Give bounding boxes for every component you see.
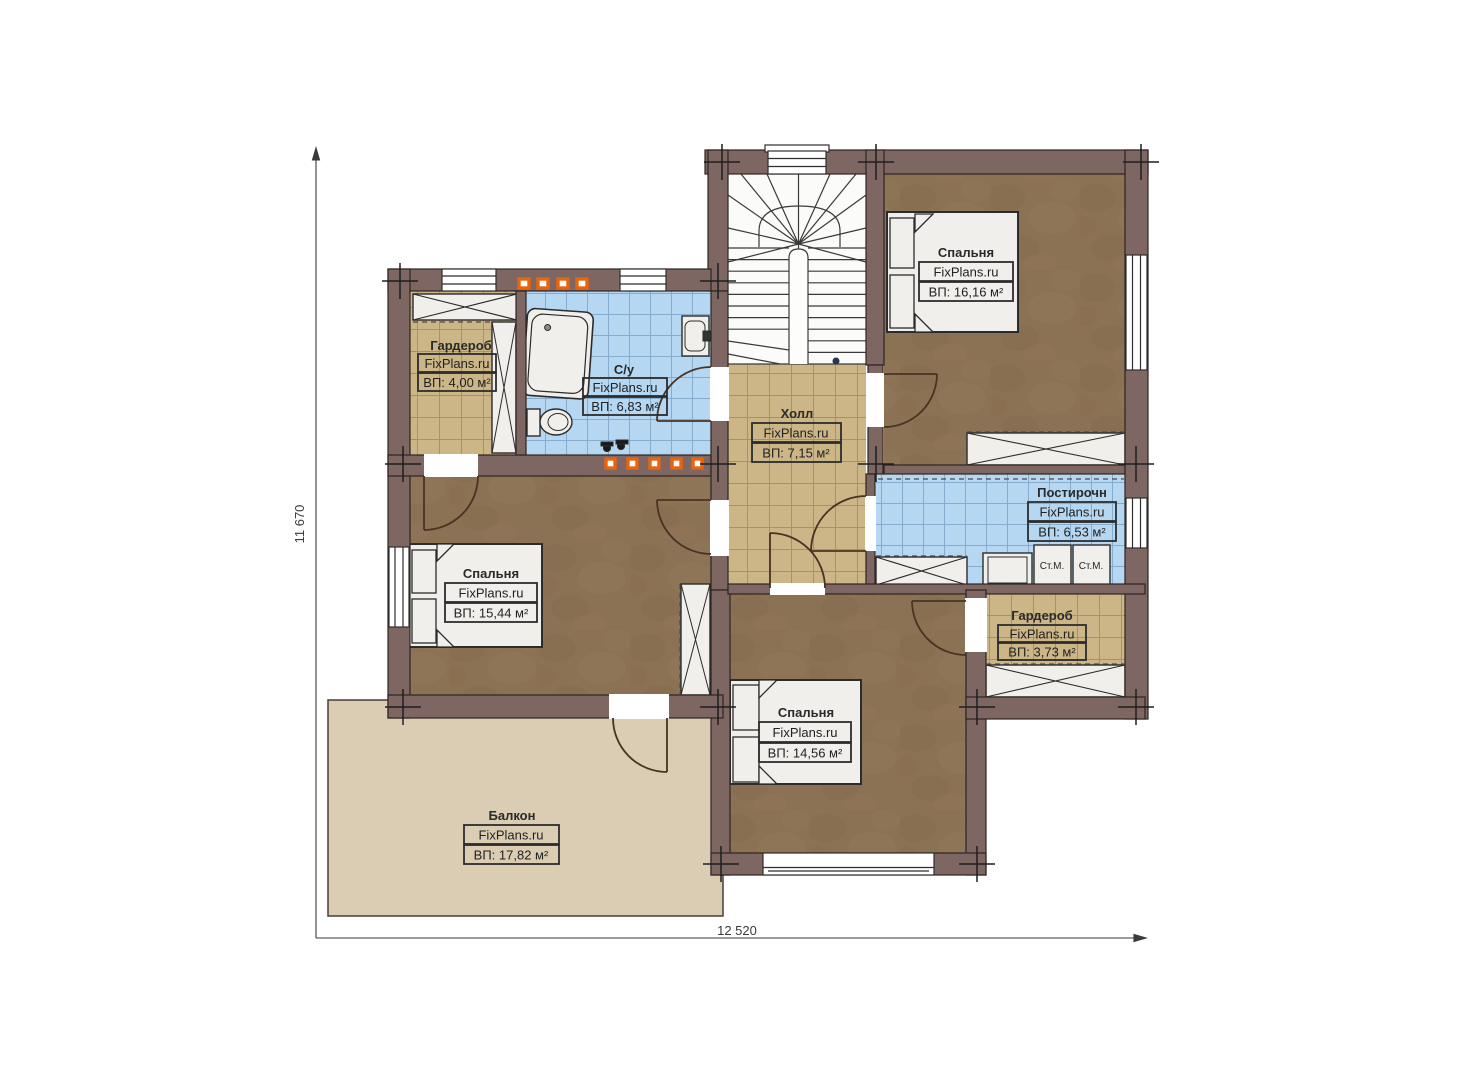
svg-text:Гардероб: Гардероб	[430, 338, 491, 353]
svg-text:ВП: 7,15 м²: ВП: 7,15 м²	[762, 446, 830, 461]
svg-text:Спальня: Спальня	[778, 705, 834, 720]
svg-text:12 520: 12 520	[717, 923, 757, 938]
svg-text:Ст.М.: Ст.М.	[1079, 561, 1104, 572]
svg-text:FixPlans.ru: FixPlans.ru	[424, 356, 489, 371]
svg-text:С/у: С/у	[614, 362, 635, 377]
svg-text:Постирочн: Постирочн	[1037, 485, 1107, 500]
svg-text:ВП: 16,16 м²: ВП: 16,16 м²	[929, 285, 1004, 300]
svg-text:FixPlans.ru: FixPlans.ru	[592, 380, 657, 395]
svg-text:Спальня: Спальня	[938, 245, 994, 260]
svg-text:ВП: 14,56 м²: ВП: 14,56 м²	[768, 746, 843, 761]
svg-text:Ст.М.: Ст.М.	[1040, 561, 1065, 572]
svg-text:ВП: 17,82 м²: ВП: 17,82 м²	[474, 848, 549, 863]
svg-text:FixPlans.ru: FixPlans.ru	[772, 725, 837, 740]
svg-text:Спальня: Спальня	[463, 566, 519, 581]
svg-text:Балкон: Балкон	[489, 808, 536, 823]
svg-text:FixPlans.ru: FixPlans.ru	[1039, 505, 1104, 520]
svg-text:FixPlans.ru: FixPlans.ru	[933, 265, 998, 280]
svg-text:FixPlans.ru: FixPlans.ru	[458, 586, 523, 601]
svg-text:FixPlans.ru: FixPlans.ru	[1009, 627, 1074, 642]
svg-text:FixPlans.ru: FixPlans.ru	[763, 426, 828, 441]
svg-text:ВП: 15,44 м²: ВП: 15,44 м²	[454, 606, 529, 621]
svg-text:Гардероб: Гардероб	[1011, 608, 1072, 623]
svg-text:ВП: 3,73 м²: ВП: 3,73 м²	[1008, 645, 1076, 660]
svg-text:FixPlans.ru: FixPlans.ru	[478, 828, 543, 843]
svg-text:ВП: 6,83 м²: ВП: 6,83 м²	[591, 399, 659, 414]
svg-text:11 670: 11 670	[292, 505, 307, 544]
svg-text:Холл: Холл	[781, 406, 814, 421]
svg-text:ВП: 4,00 м²: ВП: 4,00 м²	[423, 375, 491, 390]
svg-text:ВП: 6,53 м²: ВП: 6,53 м²	[1038, 525, 1106, 540]
